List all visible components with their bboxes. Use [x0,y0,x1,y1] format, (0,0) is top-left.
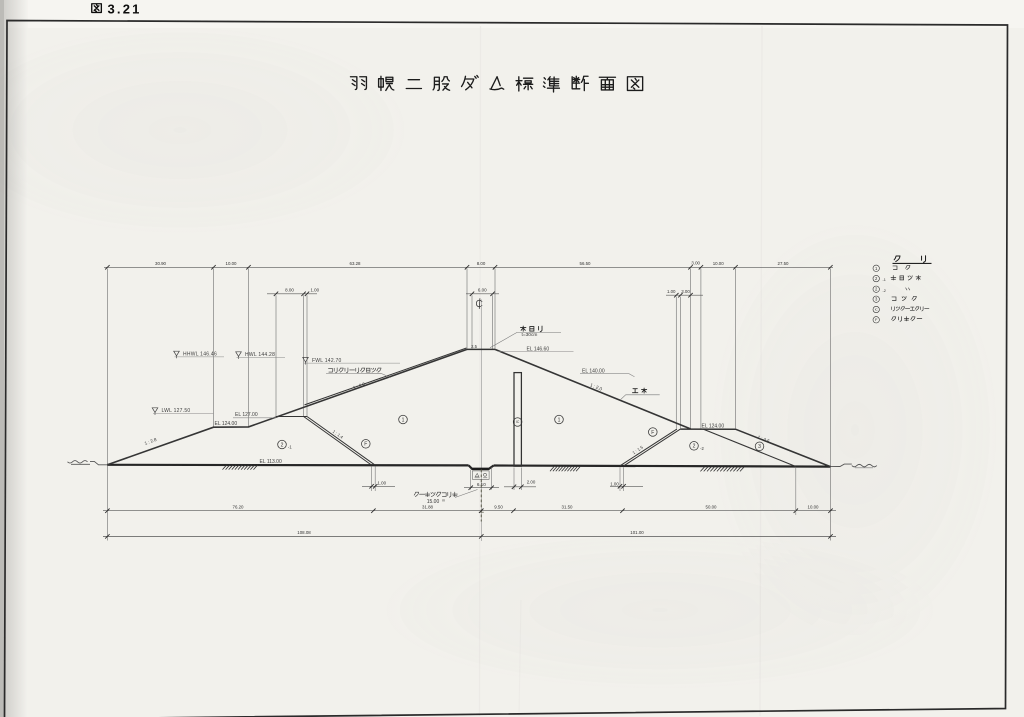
svg-text:-2: -2 [700,446,704,451]
svg-text:10.00: 10.00 [226,261,238,266]
svg-text:IC: IC [875,308,878,312]
svg-text:9.50: 9.50 [494,505,503,510]
svg-text:31.88: 31.88 [422,505,434,510]
svg-text:56.50: 56.50 [580,261,592,266]
svg-text:10.00: 10.00 [808,505,820,510]
svg-text:1.00: 1.00 [610,481,619,486]
svg-text:101.00: 101.00 [630,530,644,535]
svg-text:2: 2 [693,444,696,450]
svg-text:-1: -1 [288,445,292,450]
svg-text:6.00: 6.00 [478,288,487,293]
svg-text:1: 1 [558,417,561,423]
svg-text:8.00: 8.00 [285,288,294,293]
svg-text:F: F [364,442,367,448]
svg-text:2.00: 2.00 [527,480,536,485]
svg-text:2: 2 [281,442,284,448]
svg-text:63.28: 63.28 [350,261,362,266]
svg-text:EL 127.00: EL 127.00 [235,412,258,418]
svg-text:EL 113.00: EL 113.00 [260,459,282,465]
svg-text:1.00: 1.00 [311,288,320,293]
svg-text:IC: IC [516,420,520,424]
svg-text:EL 124.00: EL 124.00 [702,424,725,430]
svg-text:31.50: 31.50 [562,505,574,510]
svg-text:F: F [651,430,654,436]
svg-text:LWL 127.50: LWL 127.50 [162,408,191,414]
svg-text:3.00: 3.00 [681,289,690,294]
svg-text:m: m [442,498,445,502]
svg-text:27.50: 27.50 [778,261,790,266]
svg-text:1.00: 1.00 [378,481,387,486]
svg-text:3: 3 [758,444,761,450]
svg-text:76.20: 76.20 [233,505,245,510]
svg-text:-2: -2 [883,289,886,293]
svg-text:30.90: 30.90 [155,261,167,266]
svg-text:10.00: 10.00 [713,261,725,266]
svg-text:2.5: 2.5 [471,344,477,349]
svg-text:3.21: 3.21 [108,1,142,16]
svg-text:EL 124.00: EL 124.00 [215,421,238,427]
svg-text:108.08: 108.08 [297,530,311,535]
svg-text:t=30cm: t=30cm [522,332,538,338]
svg-text:1.00: 1.00 [667,289,676,294]
svg-text:3.00: 3.00 [691,261,700,266]
svg-text:-1: -1 [883,278,886,282]
svg-text:8.00: 8.00 [477,261,486,266]
svg-text:1: 1 [402,417,405,423]
svg-text:50.00: 50.00 [706,505,718,510]
